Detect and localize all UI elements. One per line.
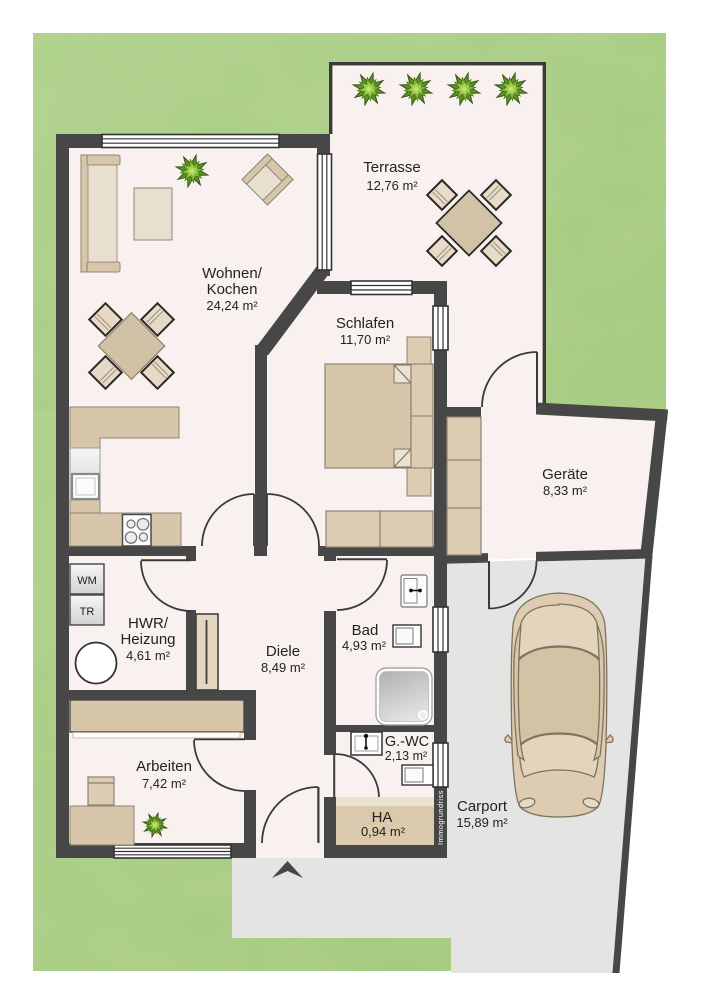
svg-text:4,61 m²: 4,61 m² — [126, 648, 171, 663]
svg-text:Diele: Diele — [266, 643, 300, 660]
svg-text:0,94 m²: 0,94 m² — [361, 824, 406, 839]
svg-text:24,24 m²: 24,24 m² — [206, 298, 258, 313]
svg-text:G.-WC: G.-WC — [385, 734, 429, 750]
svg-text:Schlafen: Schlafen — [336, 315, 394, 332]
svg-text:Bad: Bad — [352, 622, 379, 639]
svg-text:2,13 m²: 2,13 m² — [385, 749, 427, 763]
svg-text:Heizung: Heizung — [120, 631, 175, 648]
svg-text:Immogrundriss: Immogrundriss — [436, 790, 445, 845]
svg-text:TR: TR — [80, 606, 95, 618]
svg-text:Kochen: Kochen — [207, 281, 258, 298]
svg-text:Wohnen/: Wohnen/ — [202, 265, 263, 282]
svg-text:8,49 m²: 8,49 m² — [261, 660, 306, 675]
svg-text:15,89 m²: 15,89 m² — [456, 815, 508, 830]
svg-text:8,33 m²: 8,33 m² — [543, 483, 588, 498]
svg-text:HWR/: HWR/ — [128, 615, 169, 632]
svg-text:Carport: Carport — [457, 798, 508, 815]
svg-text:Geräte: Geräte — [542, 466, 588, 483]
svg-text:11,70 m²: 11,70 m² — [340, 332, 391, 347]
svg-text:12,76 m²: 12,76 m² — [366, 178, 418, 193]
svg-text:WM: WM — [77, 575, 97, 587]
svg-text:7,42 m²: 7,42 m² — [142, 776, 187, 791]
svg-text:4,93 m²: 4,93 m² — [342, 638, 387, 653]
svg-text:Terrasse: Terrasse — [363, 159, 421, 176]
svg-text:Arbeiten: Arbeiten — [136, 758, 192, 775]
